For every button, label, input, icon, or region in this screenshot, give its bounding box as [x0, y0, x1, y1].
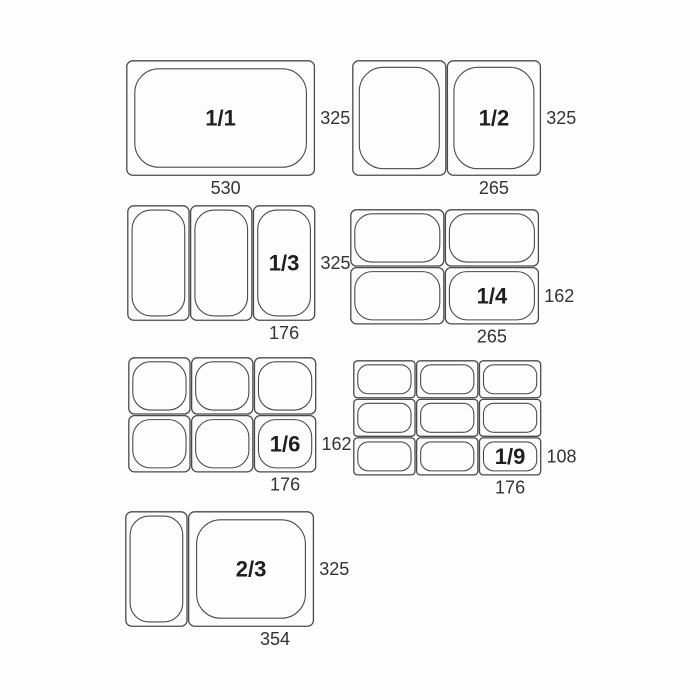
fraction-label-1_9: 1/9 — [495, 444, 526, 469]
fraction-label-2_3: 2/3 — [236, 557, 267, 582]
height-dimension-label-1_2: 325 — [546, 108, 576, 128]
width-dimension-label-1_9: 176 — [495, 478, 525, 498]
height-dimension-label-1_3: 325 — [320, 253, 350, 273]
width-dimension-label-1_1: 530 — [211, 178, 241, 198]
fraction-label-1_2: 1/2 — [479, 106, 510, 131]
fraction-label-1_6: 1/6 — [270, 431, 301, 456]
diagram-background — [0, 0, 700, 700]
width-dimension-label-1_6: 176 — [270, 475, 300, 495]
height-dimension-label-2_3: 325 — [319, 559, 349, 579]
width-dimension-label-2_3: 354 — [260, 629, 290, 649]
height-dimension-label-1_4: 162 — [544, 286, 574, 306]
fraction-label-1_4: 1/4 — [477, 283, 508, 308]
fraction-label-1_3: 1/3 — [269, 251, 300, 276]
gastronorm-size-diagram: 1/15303251/22653251/31763251/42651621/61… — [0, 0, 700, 700]
diagram-canvas: 1/15303251/22653251/31763251/42651621/61… — [0, 0, 700, 700]
height-dimension-label-1_1: 325 — [320, 108, 350, 128]
fraction-label-1_1: 1/1 — [205, 106, 236, 131]
height-dimension-label-1_9: 108 — [546, 446, 576, 466]
width-dimension-label-1_2: 265 — [479, 178, 509, 198]
width-dimension-label-1_3: 176 — [269, 323, 299, 343]
width-dimension-label-1_4: 265 — [477, 327, 507, 347]
height-dimension-label-1_6: 162 — [321, 434, 351, 454]
